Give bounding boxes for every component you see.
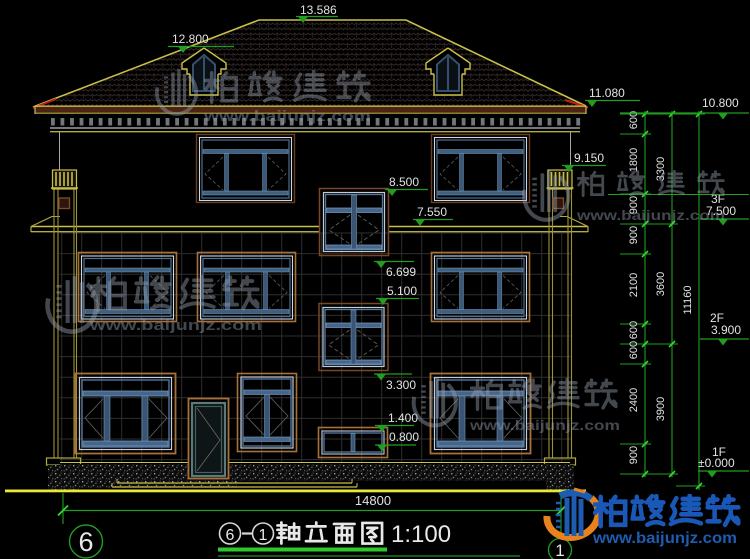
svg-text:www.baijunjz.com: www.baijunjz.com (576, 207, 725, 223)
svg-text:8.500: 8.500 (389, 175, 419, 189)
svg-text:6.699: 6.699 (386, 265, 416, 279)
svg-text:9.150: 9.150 (574, 151, 604, 165)
svg-text:2100: 2100 (628, 273, 640, 297)
svg-text:11160: 11160 (682, 286, 694, 315)
svg-text:±0.000: ±0.000 (698, 456, 735, 470)
svg-text:11.080: 11.080 (589, 86, 625, 100)
svg-text:600: 600 (628, 341, 640, 359)
svg-text:6: 6 (226, 527, 235, 544)
svg-text:900: 900 (628, 226, 640, 244)
svg-text:7.550: 7.550 (417, 205, 447, 219)
svg-text:www.baijunjz.com: www.baijunjz.com (203, 108, 371, 125)
svg-text:3.900: 3.900 (711, 323, 741, 337)
svg-text:1: 1 (555, 541, 564, 559)
svg-text:10.800: 10.800 (702, 96, 739, 110)
svg-text:3.300: 3.300 (386, 378, 416, 392)
svg-text:www.baijunjz.com: www.baijunjz.com (469, 417, 620, 433)
svg-text:1: 1 (259, 527, 268, 544)
svg-text:3900: 3900 (655, 397, 667, 421)
svg-text:600: 600 (628, 321, 640, 339)
svg-text:0.800: 0.800 (389, 430, 419, 444)
svg-text:2400: 2400 (628, 388, 640, 412)
svg-text:1800: 1800 (628, 148, 640, 172)
svg-text:13.586: 13.586 (300, 3, 337, 17)
svg-text:6: 6 (78, 527, 93, 557)
svg-text:1:100: 1:100 (391, 521, 451, 548)
svg-text:www.baijunjz.com: www.baijunjz.com (89, 317, 262, 334)
svg-text:14800: 14800 (355, 493, 391, 508)
svg-text:12.800: 12.800 (172, 32, 209, 46)
svg-text:3600: 3600 (655, 272, 667, 296)
svg-text:www.baijunjz.com: www.baijunjz.com (592, 530, 737, 547)
svg-text:900: 900 (628, 446, 640, 464)
svg-text:1.400: 1.400 (388, 411, 418, 425)
svg-text:5.100: 5.100 (387, 284, 417, 298)
